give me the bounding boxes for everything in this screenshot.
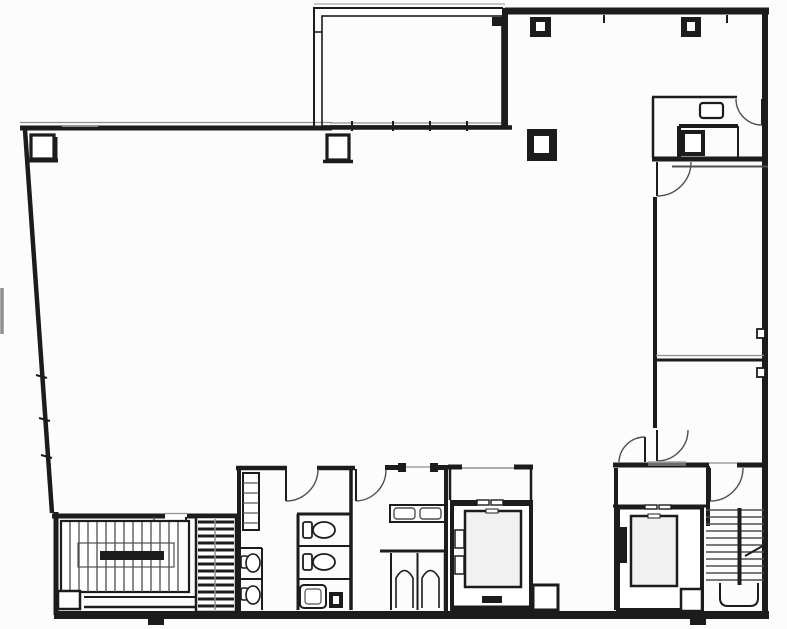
column [530, 17, 551, 37]
urinal [422, 571, 439, 609]
elevator-car [631, 516, 677, 586]
wc-fixture [683, 132, 703, 154]
toilet [303, 554, 335, 570]
floor-plan-page [0, 0, 787, 629]
elevator-door-leaf [491, 500, 503, 505]
stair-landing-box [58, 591, 80, 609]
elevator-right [616, 503, 702, 611]
washroom-top-right [652, 97, 768, 196]
elevator-car [465, 511, 521, 587]
door-swing [710, 468, 743, 501]
elevator-door-leaf [477, 500, 489, 505]
stair-landing-bar [100, 551, 164, 560]
toilet [241, 554, 260, 572]
terrace [314, 4, 505, 127]
column [28, 135, 58, 161]
urinal [396, 571, 413, 609]
toilet [241, 586, 260, 604]
toilet [303, 522, 335, 538]
service-shaft [196, 517, 236, 612]
door-swing [657, 430, 688, 461]
door-swing [356, 469, 386, 501]
sink [700, 103, 723, 118]
elevator-door-leaf [645, 505, 657, 509]
stairwell-right [706, 508, 766, 606]
shelf-cabinet [243, 473, 259, 530]
restroom-block [236, 463, 448, 613]
door-swing [619, 437, 645, 462]
threshold [648, 461, 686, 466]
column [323, 135, 353, 162]
handrail [720, 583, 758, 606]
floor-plan-canvas [0, 0, 787, 629]
elevator-door-leaf [659, 505, 671, 509]
terrace-corner-bracket [492, 17, 504, 26]
closet [533, 585, 558, 610]
door-swing [736, 99, 762, 125]
closet [681, 589, 702, 611]
counterweight [618, 527, 627, 563]
column [527, 129, 557, 161]
door-swing [286, 469, 318, 501]
elevator-left [448, 467, 558, 610]
stair-treads [706, 510, 764, 580]
column [681, 17, 701, 37]
right-rooms [619, 197, 765, 462]
structural-columns [28, 17, 701, 162]
